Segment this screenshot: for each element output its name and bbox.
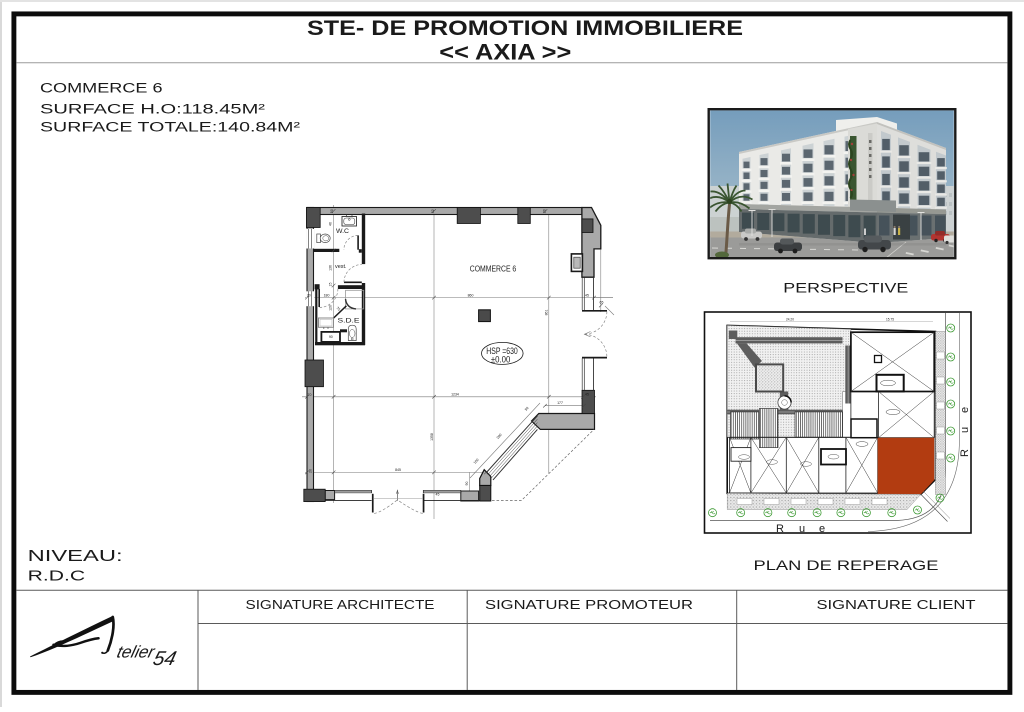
svg-text:860: 860 — [468, 293, 474, 297]
svg-text:45: 45 — [585, 293, 589, 297]
svg-text:50: 50 — [524, 406, 530, 412]
svg-text:120: 120 — [329, 305, 333, 311]
svg-text:52: 52 — [431, 209, 435, 213]
svg-text:e: e — [959, 407, 971, 413]
svg-text:46: 46 — [329, 222, 333, 226]
svg-text:45: 45 — [436, 493, 440, 497]
svg-text:15: 15 — [329, 283, 333, 287]
svg-text:SIGNATURE ARCHITECTE: SIGNATURE ARCHITECTE — [246, 598, 435, 612]
svg-text:u: u — [959, 427, 971, 433]
svg-text:15.75: 15.75 — [886, 317, 894, 321]
svg-text:150: 150 — [473, 458, 480, 465]
svg-text:136: 136 — [329, 265, 333, 271]
svg-text:NIVEAU:: NIVEAU: — [28, 548, 123, 565]
svg-text:861: 861 — [544, 310, 548, 316]
svg-text:W.C: W.C — [336, 229, 350, 235]
svg-text:845: 845 — [395, 468, 401, 472]
svg-text:45: 45 — [585, 393, 589, 397]
svg-text:STE- DE PROMOTION IMMOBILIERE: STE- DE PROMOTION IMMOBILIERE — [307, 16, 743, 40]
svg-text:telier: telier — [115, 642, 158, 662]
svg-text:COMMERCE 6: COMMERCE 6 — [470, 263, 517, 273]
svg-text:1358: 1358 — [430, 433, 434, 441]
svg-text:S.D.E: S.D.E — [338, 318, 361, 325]
svg-text:54: 54 — [151, 648, 179, 670]
svg-text:20: 20 — [543, 209, 547, 213]
svg-text:R.D.C: R.D.C — [28, 569, 86, 585]
svg-text:PLAN DE REPERAGE: PLAN DE REPERAGE — [754, 557, 939, 573]
svg-text:180: 180 — [324, 293, 330, 297]
svg-text:90: 90 — [329, 335, 333, 339]
svg-text:90: 90 — [465, 482, 469, 486]
svg-text:20: 20 — [309, 469, 313, 473]
svg-text:65: 65 — [600, 301, 604, 305]
svg-text:280: 280 — [496, 433, 503, 440]
svg-text:SURFACE TOTALE:140.84M²: SURFACE TOTALE:140.84M² — [40, 120, 301, 135]
svg-text:vest.: vest. — [335, 264, 347, 270]
svg-text:R: R — [959, 449, 971, 457]
svg-text:SIGNATURE CLIENT: SIGNATURE CLIENT — [817, 598, 976, 612]
svg-text:70: 70 — [308, 393, 312, 397]
svg-text:177: 177 — [557, 401, 563, 405]
svg-text:PERSPECTIVE: PERSPECTIVE — [783, 280, 908, 296]
svg-text:1234: 1234 — [451, 393, 459, 397]
svg-text:SIGNATURE PROMOTEUR: SIGNATURE PROMOTEUR — [485, 598, 693, 612]
svg-text:24.20: 24.20 — [786, 317, 794, 321]
svg-text:±0.00: ±0.00 — [491, 354, 511, 365]
svg-text:COMMERCE 6: COMMERCE 6 — [40, 81, 163, 96]
svg-text:SURFACE H.O:118.45M²: SURFACE H.O:118.45M² — [40, 102, 266, 117]
svg-text:<< AXIA >>: << AXIA >> — [439, 39, 571, 64]
